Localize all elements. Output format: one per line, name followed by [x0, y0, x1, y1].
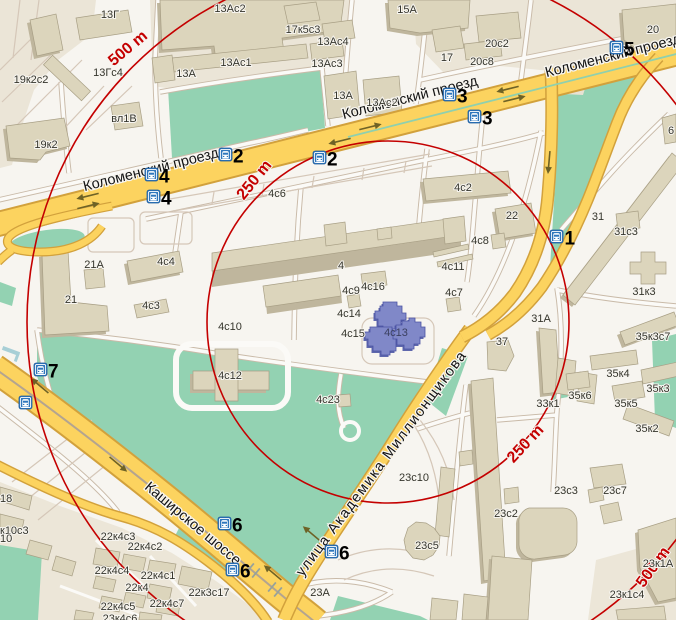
- svg-text:31с3: 31с3: [614, 226, 638, 238]
- svg-text:23с7: 23с7: [603, 485, 627, 497]
- svg-text:вл1В: вл1В: [111, 113, 136, 125]
- svg-text:22: 22: [506, 210, 518, 222]
- svg-text:2: 2: [327, 150, 338, 171]
- svg-text:35к6: 35к6: [568, 390, 591, 402]
- svg-text:13Ас2: 13Ас2: [366, 97, 397, 109]
- svg-text:21: 21: [65, 294, 77, 306]
- svg-text:1: 1: [565, 229, 576, 250]
- svg-text:15А: 15А: [397, 4, 417, 16]
- svg-text:13А: 13А: [176, 68, 196, 80]
- svg-text:13Г: 13Г: [101, 9, 119, 21]
- svg-text:4с8: 4с8: [471, 235, 489, 247]
- svg-text:17к5с3: 17к5с3: [286, 24, 321, 36]
- svg-text:23А: 23А: [310, 587, 330, 599]
- svg-text:19к2: 19к2: [34, 139, 57, 151]
- svg-text:4: 4: [338, 260, 344, 272]
- svg-text:23с5: 23с5: [415, 540, 439, 552]
- svg-text:23с10: 23с10: [399, 472, 429, 484]
- svg-text:13Ас1: 13Ас1: [220, 57, 251, 69]
- svg-text:2: 2: [233, 147, 244, 168]
- svg-text:13Ас2: 13Ас2: [214, 3, 245, 15]
- svg-text:4с13: 4с13: [384, 327, 408, 339]
- svg-text:17: 17: [441, 52, 453, 64]
- svg-text:4с10: 4с10: [218, 321, 242, 333]
- svg-text:31А: 31А: [531, 313, 551, 325]
- svg-text:18: 18: [0, 493, 12, 505]
- svg-text:4: 4: [161, 189, 172, 210]
- svg-text:4с23: 4с23: [316, 394, 340, 406]
- svg-text:4с16: 4с16: [361, 281, 385, 293]
- svg-text:6: 6: [232, 516, 243, 537]
- svg-text:22к4с4: 22к4с4: [95, 565, 130, 577]
- svg-text:13Гс4: 13Гс4: [93, 67, 123, 79]
- svg-text:22к4: 22к4: [125, 582, 148, 594]
- svg-text:4с3: 4с3: [142, 300, 160, 312]
- svg-text:7: 7: [48, 362, 59, 383]
- svg-text:22к4с7: 22к4с7: [150, 598, 185, 610]
- svg-text:13А: 13А: [333, 90, 353, 102]
- svg-text:22к4с2: 22к4с2: [128, 541, 163, 553]
- svg-text:4с4: 4с4: [157, 256, 175, 268]
- svg-text:5: 5: [624, 40, 635, 61]
- svg-text:6: 6: [240, 562, 251, 583]
- svg-text:19к2с2: 19к2с2: [14, 74, 49, 86]
- svg-text:6: 6: [339, 544, 350, 565]
- svg-text:23к1А: 23к1А: [643, 558, 674, 570]
- svg-text:4с12: 4с12: [218, 370, 242, 382]
- svg-text:23к1с4: 23к1с4: [610, 589, 645, 601]
- svg-text:21А: 21А: [84, 259, 104, 271]
- svg-text:4с9: 4с9: [342, 285, 360, 297]
- svg-text:23с3: 23с3: [554, 485, 578, 497]
- svg-text:3: 3: [457, 87, 468, 108]
- svg-text:4с7: 4с7: [445, 287, 463, 299]
- svg-text:20с2: 20с2: [485, 38, 509, 50]
- svg-text:4с11: 4с11: [441, 261, 464, 273]
- svg-text:22к3с17: 22к3с17: [189, 587, 230, 599]
- svg-text:31: 31: [592, 211, 604, 223]
- svg-text:13Ас4: 13Ас4: [317, 36, 348, 48]
- svg-text:10: 10: [0, 533, 12, 545]
- svg-text:3: 3: [482, 109, 493, 130]
- svg-text:35к3: 35к3: [646, 383, 669, 395]
- svg-text:22к4с5: 22к4с5: [101, 601, 136, 613]
- svg-text:4: 4: [159, 167, 170, 188]
- svg-text:23к4с6: 23к4с6: [103, 613, 138, 620]
- svg-text:31к3: 31к3: [632, 286, 655, 298]
- svg-text:35к5: 35к5: [614, 398, 637, 410]
- svg-text:6: 6: [668, 125, 674, 137]
- svg-text:20: 20: [647, 24, 659, 36]
- svg-text:4с6: 4с6: [268, 188, 286, 200]
- svg-text:35к2: 35к2: [635, 423, 658, 435]
- svg-text:13Ас3: 13Ас3: [311, 58, 342, 70]
- svg-text:22к4с1: 22к4с1: [141, 570, 176, 582]
- svg-text:37: 37: [496, 336, 508, 348]
- svg-text:20с8: 20с8: [470, 56, 494, 68]
- svg-text:4с14: 4с14: [337, 308, 361, 320]
- svg-text:35к4: 35к4: [606, 368, 629, 380]
- svg-text:4с2: 4с2: [454, 182, 472, 194]
- svg-text:35к3с7: 35к3с7: [636, 331, 671, 343]
- svg-text:4с15: 4с15: [341, 328, 365, 340]
- svg-text:33к1: 33к1: [536, 398, 559, 410]
- svg-text:23с2: 23с2: [494, 508, 518, 520]
